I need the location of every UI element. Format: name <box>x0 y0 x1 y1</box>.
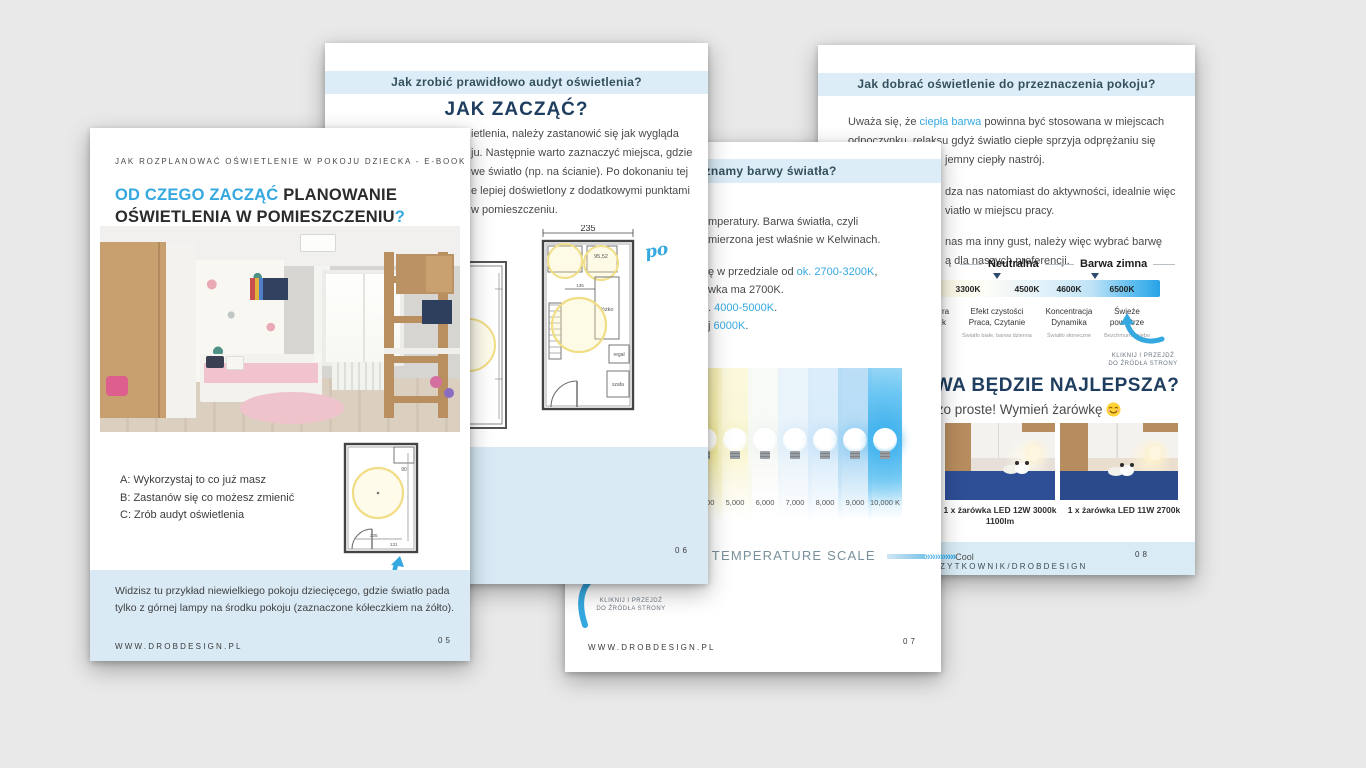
navy-cabinet <box>422 300 452 324</box>
curved-arrow-icon[interactable] <box>1118 307 1166 347</box>
page-07-number: 07 <box>903 637 918 646</box>
hanging-cabinet <box>396 254 454 294</box>
panda-plush <box>1015 463 1029 474</box>
lightbulb-icon <box>783 428 807 452</box>
svg-text:235: 235 <box>370 533 378 538</box>
page-05-kicker: JAK ROZPLANOWAĆ OŚWIETLENIE W POKOJU DZI… <box>115 157 466 166</box>
smiling-emoji-icon <box>1106 402 1121 417</box>
toy <box>444 388 454 398</box>
svg-text:90: 90 <box>401 467 407 473</box>
lightbulb-icon <box>873 428 897 452</box>
desktop-background: Jak dobrać oświetlenie do przeznaczenia … <box>0 0 1366 768</box>
page-07-line-6: j 6000K. <box>708 317 748 336</box>
blue-bed <box>945 471 1055 500</box>
kids-room-photo <box>100 226 460 432</box>
wall-shelf <box>250 278 288 300</box>
cool-label: Cool <box>955 552 974 562</box>
kelvin-tick: 6500K <box>1109 284 1134 294</box>
paragraph-line: ietlenia, należy zastanowić się jak wygl… <box>471 125 692 144</box>
page-06-title: JAK ZACZĄĆ? <box>325 99 708 121</box>
bulb-column-7000k: 7,000 <box>780 368 810 545</box>
paragraph-line: ju. Następnie warto zaznaczyć miejsca, g… <box>471 144 692 163</box>
page-06-paragraph: ietlenia, należy zastanowić się jak wygl… <box>471 125 692 220</box>
chart-column-fragment: k <box>942 318 946 327</box>
photo-caption-1: 1 x żarówka LED 12W 3000k1100lm <box>935 505 1065 527</box>
bulb-column-9000k: 9,000 <box>840 368 870 545</box>
bag <box>106 376 128 396</box>
chart-pointer-triangle <box>1091 273 1099 279</box>
room-photo-2700k <box>1060 423 1178 500</box>
title-accent: OD CZEGO ZACZĄĆ <box>115 186 283 204</box>
page-06-header-band: Jak zrobić prawidłowo audyt oświetlenia? <box>325 71 708 94</box>
paragraph-line: e lepiej doświetlony z dodatkowymi punkt… <box>471 182 692 201</box>
bulb-column-10000k: 10,000 K <box>870 368 900 545</box>
chevron-arrows-icon: »»» <box>925 551 940 563</box>
toy <box>430 376 442 388</box>
chart-group-label-cold: Barwa zimna <box>1046 258 1181 270</box>
page-05-number: 05 <box>438 636 453 645</box>
bulb-column-5000k: 5,000 <box>720 368 750 545</box>
page-08-number: 08 <box>1135 550 1150 559</box>
lightbulb-icon <box>753 428 777 452</box>
svg-text:regał: regał <box>613 352 625 358</box>
page-07-line-5: . 4000-5000K. <box>708 299 777 318</box>
page-08-paragraph-1-line-3: jemny ciepły nastrój. <box>945 151 1045 170</box>
arrow-bar <box>887 554 925 559</box>
option-b: B: Zastanów się co możesz zmienić <box>120 490 294 508</box>
page-08-paragraph-2-line-2: viatło w miejscu pracy. <box>945 202 1054 221</box>
paragraph-line: we światło (np. na ścianie). Po dokonani… <box>471 163 692 182</box>
panda-plush <box>1120 465 1134 476</box>
lightbulb-icon <box>843 428 867 452</box>
options-list: A: Wykorzystaj to co już masz B: Zastanó… <box>120 472 294 525</box>
kelvin-tick: 4500K <box>1014 284 1039 294</box>
page-05-title: OD CZEGO ZACZĄĆ PLANOWANIE OŚWIETLENIA W… <box>115 184 405 228</box>
chevron-arrows-icon: »»» <box>940 551 955 563</box>
accent-text: 6000K <box>714 320 746 332</box>
desk-top <box>384 348 460 354</box>
page-08-paragraph-1-line-1: Uważa się, że ciepła barwa powinna być s… <box>848 113 1164 132</box>
photo-caption-2: 1 x żarówka LED 11W 2700k <box>1065 505 1183 516</box>
radiator <box>332 362 384 390</box>
floor-plan-small: 90 235 131 <box>342 441 424 556</box>
page-07-line-3: ę w przedziale od ok. 2700-3200K, <box>708 263 877 282</box>
accent-text: 4000-5000K <box>714 302 774 314</box>
handwritten-annotation: po <box>643 239 669 263</box>
page-07-line-2: mierzona jest właśnie w Kelwinach. <box>708 231 880 250</box>
page-05-footer-link[interactable]: WWW.DROBDESIGN.PL <box>115 642 243 651</box>
kelvin-tick: 3300K <box>955 284 980 294</box>
page-08-header-band: Jak dobrać oświetlenie do przeznaczenia … <box>818 73 1195 96</box>
floor-plan-after: 235 95,52 łóżko regał szafa 135 <box>535 225 641 415</box>
page-08-paragraph-3-line-1: nas ma inny gust, należy więc wybrać bar… <box>945 233 1162 252</box>
option-a: A: Wykorzystaj to co już masz <box>120 472 294 490</box>
svg-text:235: 235 <box>580 225 595 233</box>
chart-column-fragment: ra <box>942 307 949 316</box>
ceiling-lamp <box>300 234 336 252</box>
title-question-mark: ? <box>395 208 405 226</box>
paragraph-line: w pomieszczeniu. <box>471 201 692 220</box>
page-08-paragraph-2-line-1: dza nas natomiast do aktywności, idealni… <box>945 183 1176 202</box>
wood-cabinet <box>1022 423 1055 432</box>
click-source-note[interactable]: KLIKNIJ I PRZEJDŹDO ŹRÓDŁA STRONY <box>591 597 671 613</box>
bulb-column-8000k: 8,000 <box>810 368 840 545</box>
page-07-footer-link[interactable]: WWW.DROBDESIGN.PL <box>588 643 716 652</box>
pink-rug <box>240 392 344 424</box>
svg-text:135: 135 <box>576 283 584 288</box>
bulb-column-6000k: 6,000 <box>750 368 780 545</box>
accent-text: ciepła barwa <box>920 116 982 128</box>
page-07-line-1: mperatury. Barwa światła, czyli <box>708 213 858 232</box>
accent-text: ok. 2700-3200K <box>797 266 875 278</box>
note-text: Widzisz tu przykład niewielkiego pokoju … <box>115 583 454 617</box>
page-07-line-4: wka ma 2700K. <box>708 281 784 300</box>
ebook-page-05: JAK ROZPLANOWAĆ OŚWIETLENIE W POKOJU DZI… <box>90 128 470 661</box>
lamp <box>1149 446 1161 460</box>
svg-text:131: 131 <box>390 542 398 547</box>
lamp <box>1028 446 1040 460</box>
page-08-footer-link[interactable]: UZYTKOWNIK/DROBDESIGN <box>932 562 1088 571</box>
svg-text:szafa: szafa <box>612 382 624 388</box>
chart-pointer-triangle <box>993 273 1001 279</box>
svg-text:95,52: 95,52 <box>594 254 608 260</box>
page-06-number: 06 <box>675 546 690 555</box>
room-photo-3000k <box>945 423 1055 500</box>
lightbulb-icon <box>723 428 747 452</box>
wood-cabinet <box>1143 423 1178 432</box>
kelvin-tick: 4600K <box>1056 284 1081 294</box>
lightbulb-icon <box>813 428 837 452</box>
option-c: C: Zrób audyt oświetlenia <box>120 507 294 525</box>
click-source-note[interactable]: KLIKNIJ I PRZEJDŹDO ŹRÓDŁA STRONY <box>1103 352 1183 368</box>
